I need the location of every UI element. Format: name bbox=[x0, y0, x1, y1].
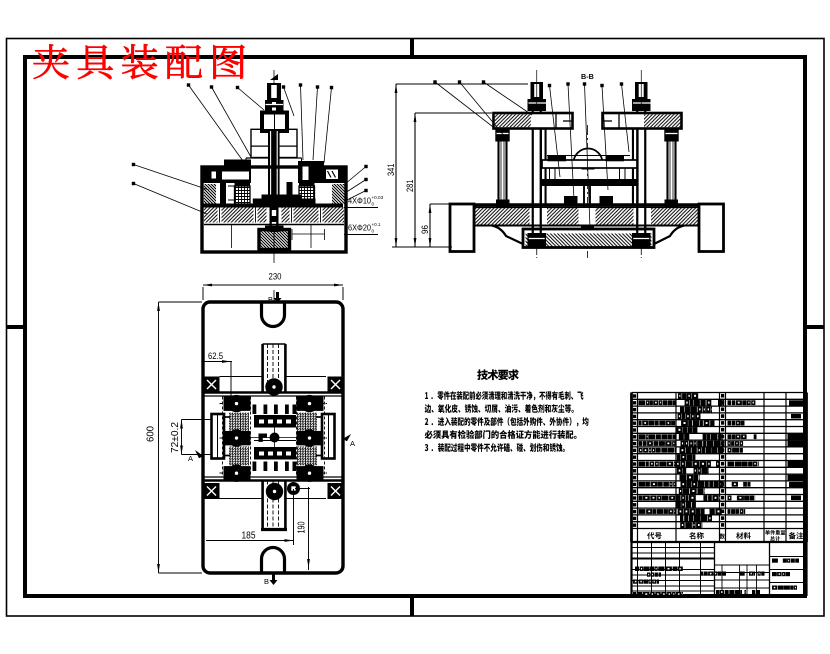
svg-text:230: 230 bbox=[269, 272, 282, 283]
svg-text:B: B bbox=[264, 577, 269, 586]
svg-text:72±0.2: 72±0.2 bbox=[170, 422, 181, 453]
svg-text:A: A bbox=[188, 454, 193, 463]
svg-text:62.5: 62.5 bbox=[208, 351, 223, 361]
svg-text:96: 96 bbox=[420, 225, 431, 234]
svg-text:190: 190 bbox=[297, 521, 308, 533]
svg-text:B: B bbox=[268, 295, 273, 304]
svg-text:+0.03: +0.03 bbox=[372, 195, 384, 200]
svg-text:600: 600 bbox=[146, 426, 157, 442]
svg-text:0: 0 bbox=[372, 229, 375, 234]
svg-text:4XΦ10: 4XΦ10 bbox=[348, 197, 371, 206]
svg-text:281: 281 bbox=[405, 180, 416, 193]
svg-text:A: A bbox=[350, 439, 355, 448]
svg-text:185: 185 bbox=[242, 531, 256, 542]
svg-text:0: 0 bbox=[372, 202, 375, 207]
svg-text:6XΦ20: 6XΦ20 bbox=[348, 224, 371, 233]
svg-text:+0.1: +0.1 bbox=[372, 222, 382, 227]
svg-text:B-B: B-B bbox=[581, 72, 594, 81]
svg-text:341: 341 bbox=[386, 164, 397, 177]
